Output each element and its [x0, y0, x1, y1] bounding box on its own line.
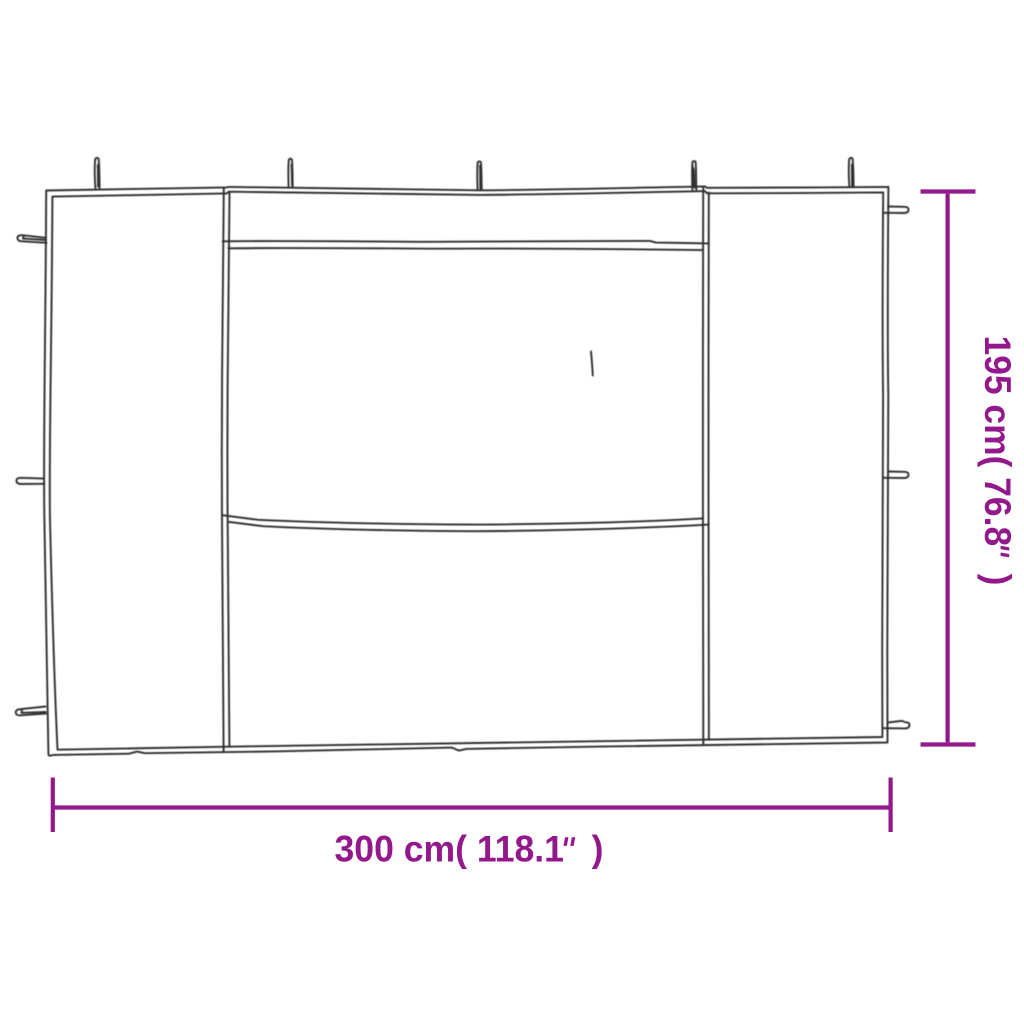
svg-text:195 cm( 76.8” ): 195 cm( 76.8” ) — [977, 336, 1019, 586]
svg-text:300 cm( 118.1” ): 300 cm( 118.1” ) — [335, 828, 604, 870]
